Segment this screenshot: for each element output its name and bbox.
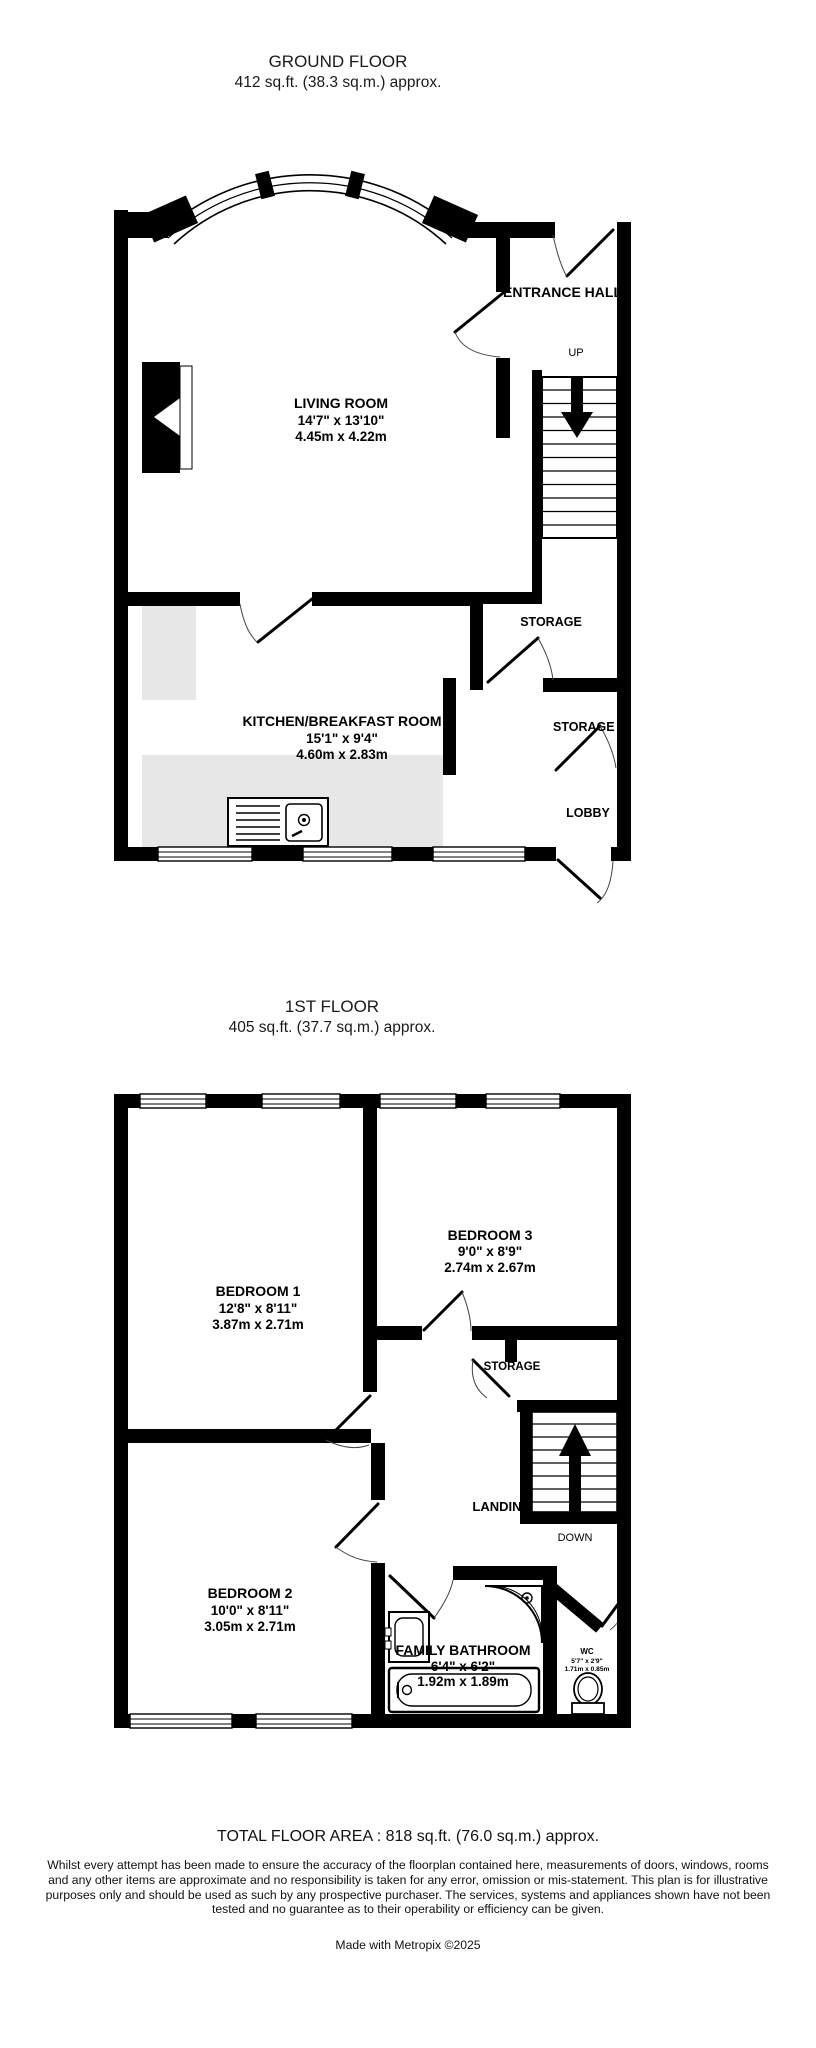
bedroom3-metric: 2.74m x 2.67m — [444, 1260, 536, 1275]
ground-floor-right-wall — [617, 222, 631, 861]
kitchen-metric: 4.60m x 2.83m — [296, 747, 388, 762]
kitchen-imperial: 15'1" x 9'4" — [306, 731, 378, 746]
first-floor-windows — [130, 1094, 560, 1728]
disclaimer-text: Whilst every attempt has been made to en… — [44, 1858, 772, 1917]
stair-arrow-shaft — [571, 378, 583, 412]
bathroom-name: FAMILY BATHROOM — [395, 1642, 530, 1658]
corner-shower — [485, 1586, 542, 1643]
bedroom3-imperial: 9'0" x 8'9" — [458, 1244, 522, 1259]
first-floor-subtitle: 405 sq.ft. (37.7 sq.m.) approx. — [229, 1019, 436, 1036]
living-room-metric: 4.45m x 4.22m — [295, 429, 387, 444]
storage2-label: STORAGE — [553, 720, 615, 734]
bedroom2-metric: 3.05m x 2.71m — [204, 1619, 296, 1634]
kitchen-name: KITCHEN/BREAKFAST ROOM — [242, 713, 441, 729]
ground-floor-stairs — [542, 377, 617, 538]
bay-window — [142, 171, 478, 244]
first-floor-walls — [114, 1094, 631, 1728]
floorplan-canvas: GROUND FLOOR 412 sq.ft. (38.3 sq.m.) app… — [0, 0, 816, 2048]
bedroom2-imperial: 10'0" x 8'11" — [211, 1603, 290, 1618]
living-room-imperial: 14'7" x 13'10" — [298, 413, 385, 428]
bedroom1-metric: 3.87m x 2.71m — [212, 1317, 304, 1332]
bedroom1-name: BEDROOM 1 — [216, 1283, 301, 1299]
kitchen-sink — [228, 798, 328, 846]
bathroom-imperial: 6'4" x 6'2" — [431, 1659, 495, 1674]
wc-angled-wall — [550, 1586, 600, 1628]
bedroom3-name: BEDROOM 3 — [448, 1227, 533, 1243]
ground-floor-labels: ENTRANCE HALL STORAGE UP LIVING ROOM 14'… — [242, 284, 622, 820]
storage-first-label: STORAGE — [484, 1361, 541, 1373]
floorplan-page: GROUND FLOOR 412 sq.ft. (38.3 sq.m.) app… — [0, 0, 816, 2048]
toilet — [572, 1673, 604, 1714]
lobby-label: LOBBY — [566, 806, 610, 820]
ground-floor-subtitle: 412 sq.ft. (38.3 sq.m.) approx. — [235, 74, 442, 91]
bedroom1-imperial: 12'8" x 8'11" — [219, 1301, 298, 1316]
first-floor-plan: BEDROOM 1 12'8" x 8'11" 3.87m x 2.71m BE… — [114, 1094, 631, 1728]
bedroom2-name: BEDROOM 2 — [208, 1585, 293, 1601]
ground-floor-title: GROUND FLOOR — [269, 52, 408, 71]
landing-label: LANDING — [472, 1499, 531, 1514]
living-room-name: LIVING ROOM — [294, 395, 388, 411]
first-floor-right-wall — [617, 1094, 631, 1728]
up-label: UP — [568, 347, 583, 359]
wc-metric: 1.71m x 0.85m — [565, 1666, 610, 1673]
total-floor-area: TOTAL FLOOR AREA : 818 sq.ft. (76.0 sq.m… — [0, 1828, 816, 1846]
first-floor-stairs — [532, 1412, 617, 1512]
metropix-credit: Made with Metropix ©2025 — [0, 1938, 816, 1952]
bathroom-metric: 1.92m x 1.89m — [417, 1674, 509, 1689]
down-label: DOWN — [558, 1532, 593, 1544]
first-floor-title: 1ST FLOOR — [285, 997, 379, 1016]
storage1-label: STORAGE — [520, 615, 582, 629]
wc-name: WC — [580, 1647, 594, 1656]
stair-arrow-shaft-up — [569, 1452, 581, 1512]
kitchen-windows — [158, 847, 525, 861]
entrance-hall-label: ENTRANCE HALL — [503, 284, 622, 300]
wc-imperial: 5'7" x 2'9" — [571, 1658, 602, 1665]
fireplace — [142, 362, 192, 473]
ground-floor-plan: ENTRANCE HALL STORAGE UP LIVING ROOM 14'… — [114, 171, 631, 903]
